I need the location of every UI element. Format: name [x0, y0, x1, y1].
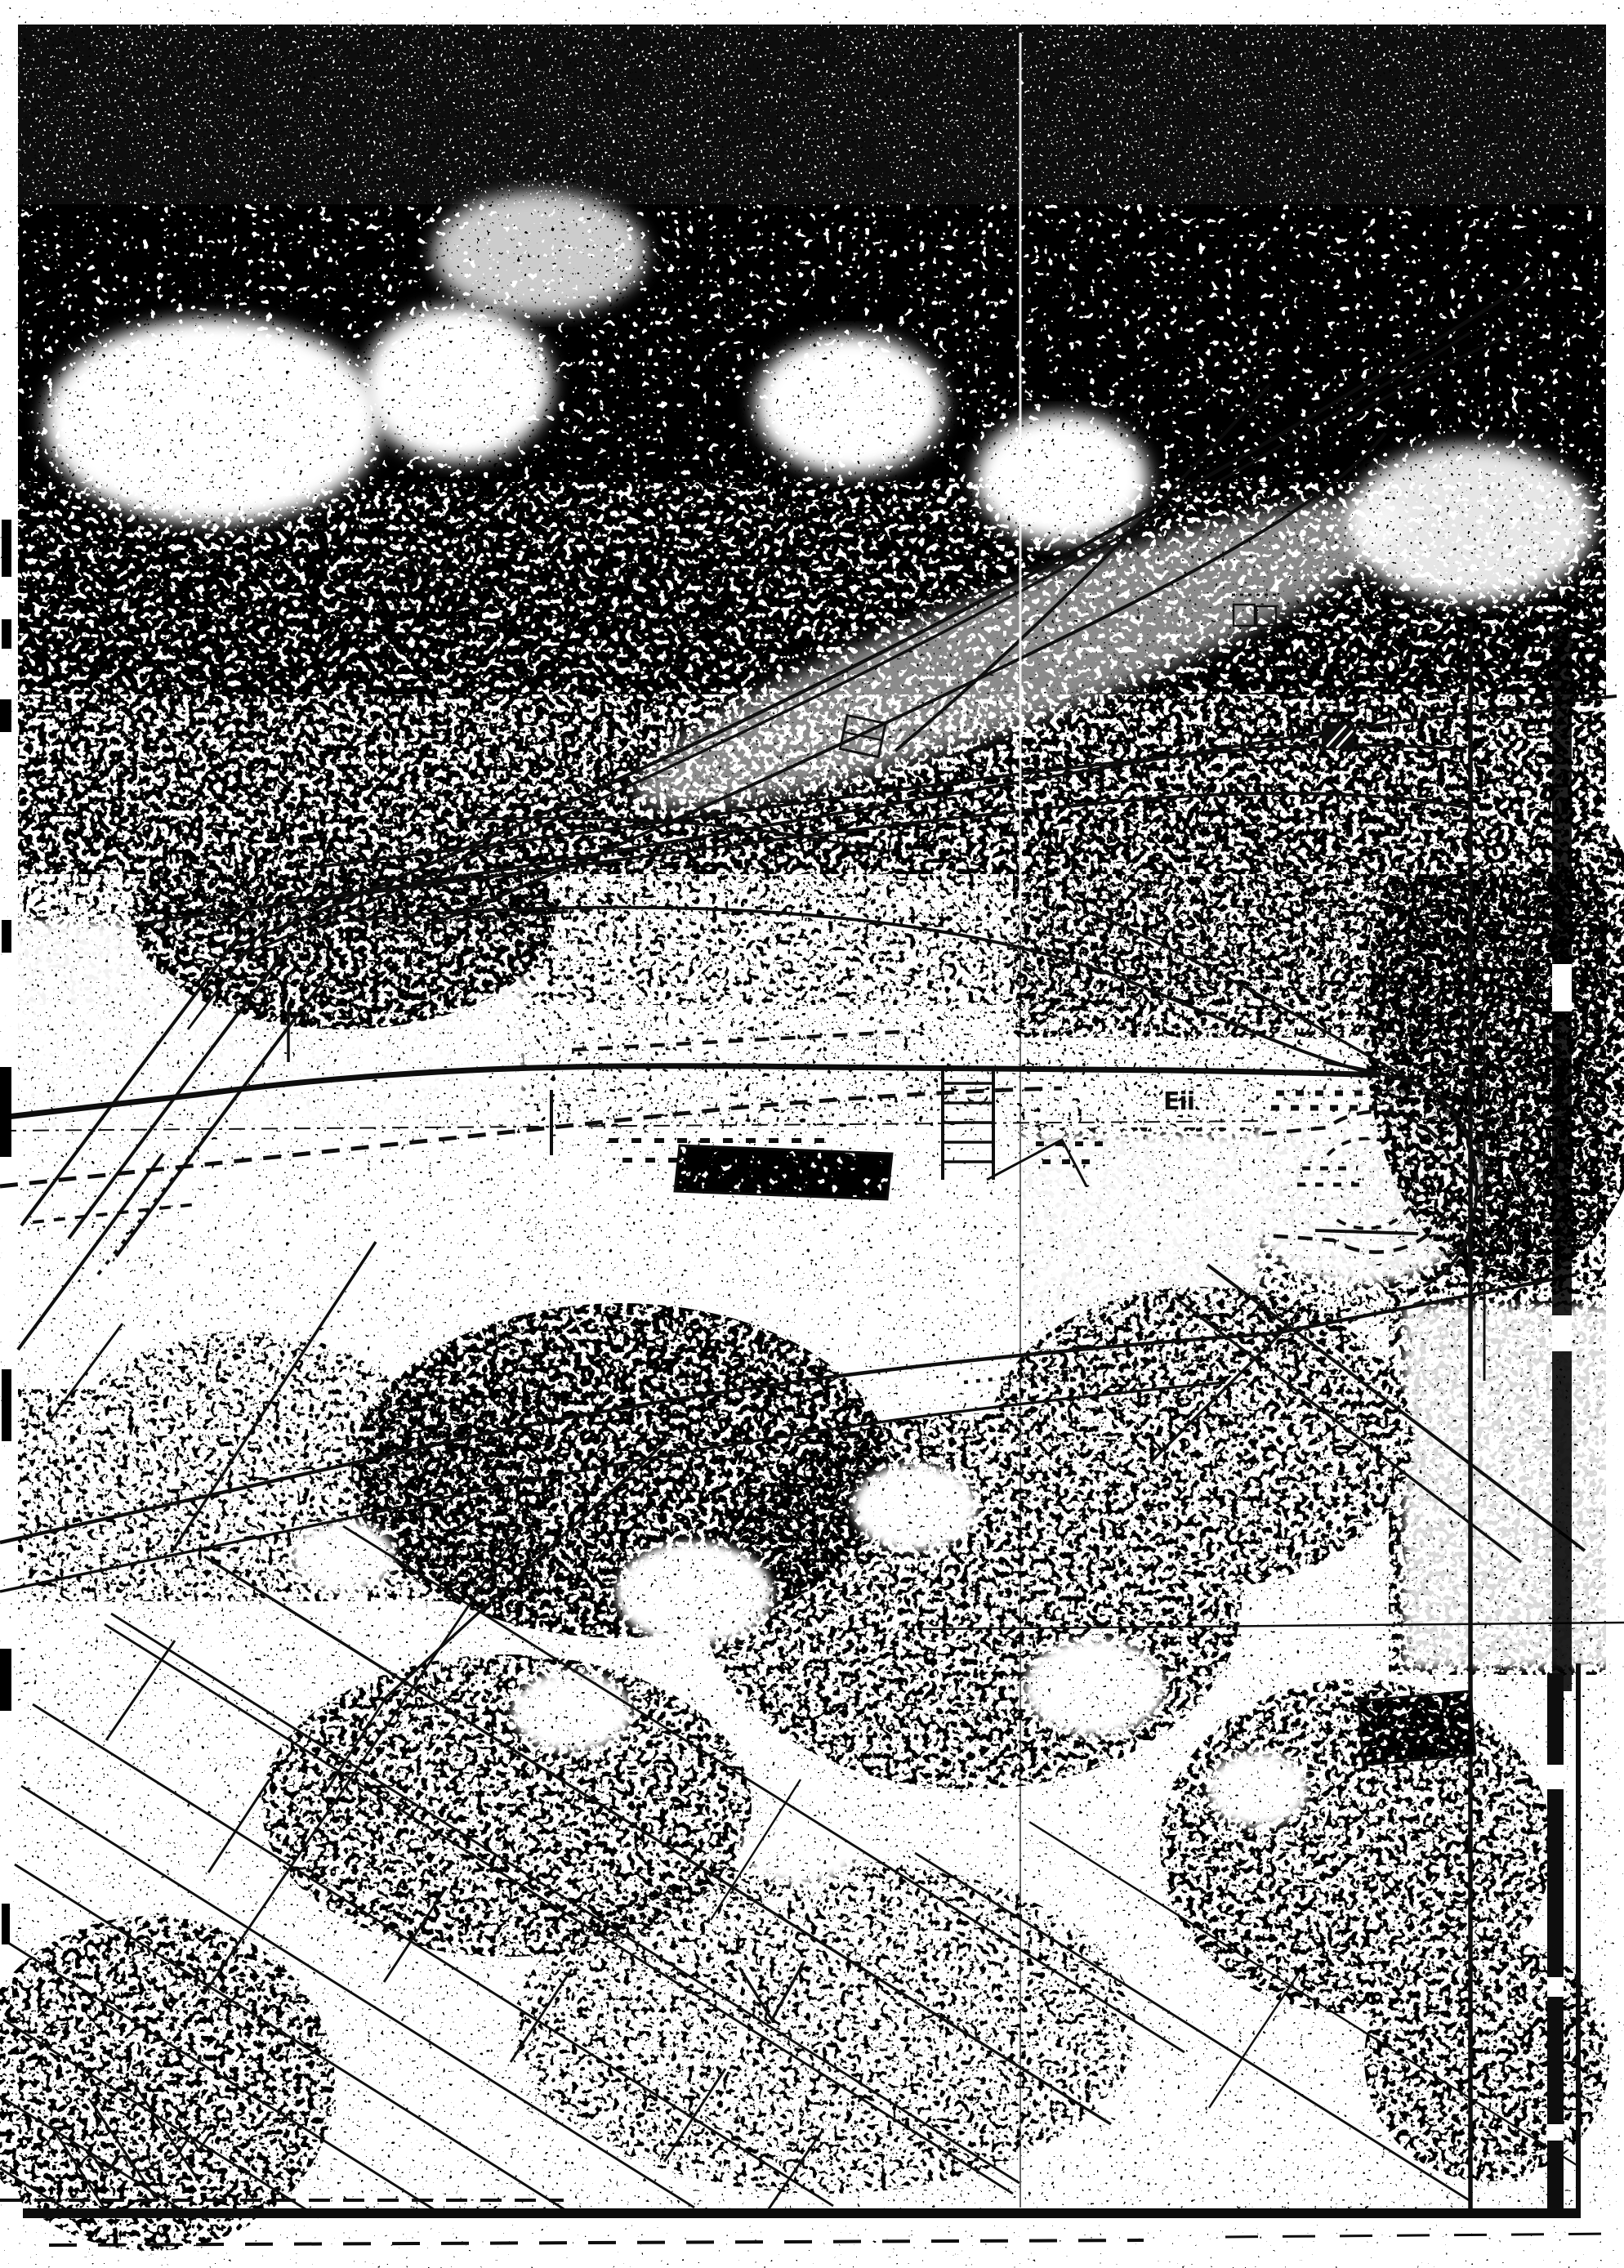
hatched-building-footprint	[675, 1145, 892, 1199]
dark-building-bottom-right	[1359, 1691, 1475, 1765]
photocopy-noise-texture	[18, 25, 1606, 2210]
ladder-bridge-symbol	[943, 1067, 993, 1180]
scanned-map-sheet: Eii	[0, 0, 1624, 2268]
map-label-eii: Eii	[1163, 1087, 1194, 1116]
map-scan-canvas: Eii	[0, 0, 1624, 2268]
